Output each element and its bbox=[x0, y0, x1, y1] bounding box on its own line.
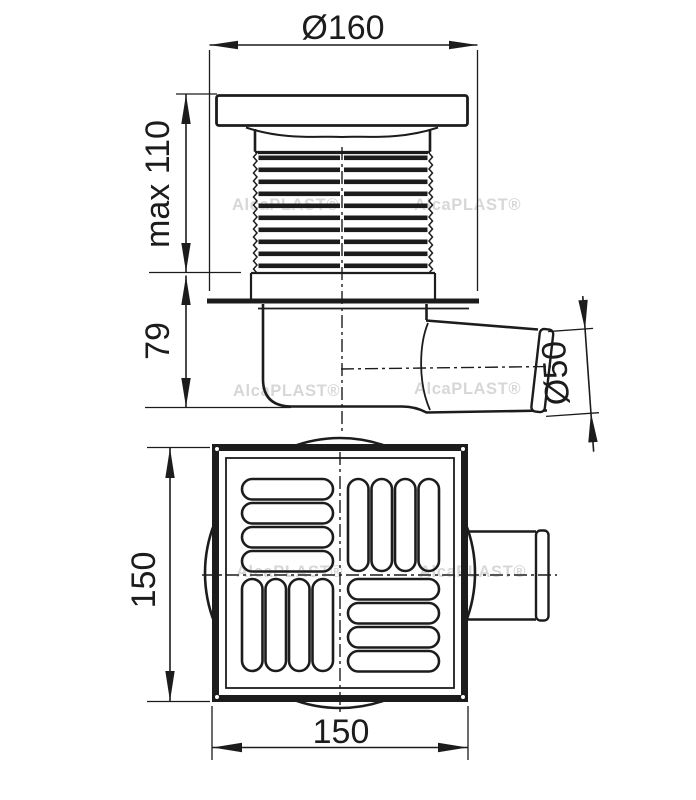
grate-slot bbox=[266, 579, 287, 671]
grate-slot bbox=[289, 579, 310, 671]
grate-slot bbox=[348, 627, 439, 648]
arrowhead-bottom bbox=[181, 378, 190, 407]
dim-plan-height: 150 bbox=[125, 448, 210, 702]
pipe-axis-centerline bbox=[341, 367, 551, 370]
grate-cover-side bbox=[217, 96, 468, 153]
dim-label-body-height: 79 bbox=[139, 322, 177, 360]
arrowhead-bottom bbox=[181, 243, 190, 272]
frame-corner-dot bbox=[215, 695, 219, 699]
grate-slot bbox=[242, 579, 263, 671]
dim-label-outlet-diameter: Ø50 bbox=[535, 340, 577, 407]
grate-slot bbox=[348, 479, 369, 571]
arrowhead-right bbox=[449, 41, 478, 50]
watermark-text: AlcaPLAST® bbox=[414, 380, 521, 398]
drawing-canvas: Ø160 max 110 79 Ø50 bbox=[0, 0, 696, 800]
frame-corner-dot bbox=[461, 695, 465, 699]
grate-slot bbox=[419, 479, 440, 571]
watermark-text: AlcaPLAST® bbox=[414, 196, 521, 214]
dim-label-plan-width: 150 bbox=[313, 713, 370, 751]
arrowhead-left bbox=[213, 743, 243, 752]
technical-drawing: Ø160 max 110 79 Ø50 bbox=[0, 0, 696, 800]
pipe-top-edge bbox=[426, 321, 538, 330]
grate-slot bbox=[242, 503, 333, 524]
arrowhead-top bbox=[181, 95, 190, 125]
frame-corner-dot bbox=[215, 447, 219, 451]
watermark-text: AlcaPLAST® bbox=[236, 563, 343, 581]
drain-neck bbox=[251, 273, 435, 299]
sealing-flange bbox=[207, 301, 479, 309]
pipe-bottom-edge bbox=[426, 411, 547, 413]
watermark-text: AlcaPLAST® bbox=[233, 382, 340, 400]
cover-underside-curve bbox=[246, 128, 438, 138]
arrowhead-right bbox=[438, 743, 468, 752]
frame-corner-dot bbox=[461, 447, 465, 451]
dim-plan-width: 150 bbox=[212, 706, 468, 760]
grate-slot bbox=[372, 479, 393, 571]
watermark-text: AlcaPLAST® bbox=[232, 196, 339, 214]
dim-label-plan-height: 150 bbox=[125, 552, 163, 609]
arrowhead-bottom bbox=[165, 671, 174, 701]
grate-slot bbox=[348, 603, 439, 624]
arrowhead-top bbox=[181, 276, 190, 305]
dim-label-flange-diameter: Ø160 bbox=[301, 9, 384, 47]
grate-slot bbox=[242, 527, 333, 548]
watermark-text: AlcaPLAST® bbox=[419, 563, 526, 581]
grate-slot bbox=[313, 579, 334, 671]
plan-view: 150 150 bbox=[125, 438, 557, 760]
grate-slot bbox=[348, 579, 439, 600]
side-view: Ø160 max 110 79 Ø50 bbox=[139, 9, 602, 455]
arrowhead-top bbox=[165, 448, 174, 478]
grate-slot bbox=[395, 479, 416, 571]
neck-outline bbox=[251, 273, 435, 299]
grate-slot bbox=[348, 651, 439, 672]
cover-plate bbox=[217, 96, 468, 126]
dim-outlet-diameter: Ø50 bbox=[532, 295, 602, 455]
grate-slot bbox=[242, 479, 333, 500]
arrowhead-left bbox=[210, 41, 239, 50]
dim-label-max-height: max 110 bbox=[139, 120, 177, 248]
